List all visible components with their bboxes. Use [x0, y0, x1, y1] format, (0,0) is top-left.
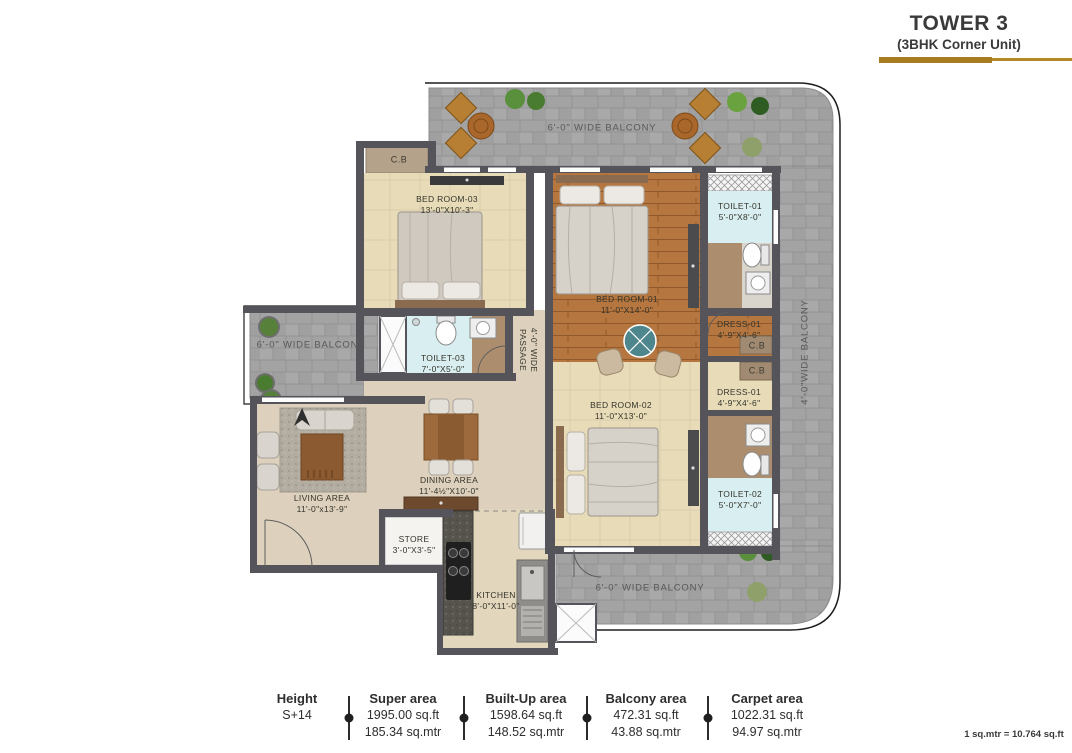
label-toilet2: TOILET-025'-0"X7'-0" — [718, 489, 762, 511]
divider-dot — [704, 714, 713, 723]
label-bedroom2: BED ROOM-0211'-0"X13'-0" — [590, 400, 652, 422]
label-dress2: DRESS-014'-9"X4'-6" — [717, 387, 761, 409]
stats-divider — [707, 696, 709, 740]
stats-divider — [348, 696, 350, 740]
page-title: TOWER 3 — [846, 12, 1072, 36]
label-bedroom1: BED ROOM-0111'-0"X14'-0" — [596, 294, 658, 316]
label-toilet1: TOILET-015'-0"X8'-0" — [718, 201, 762, 223]
label-balcony-left: 6'-0" WIDE BALCONY — [257, 340, 366, 351]
stats-divider — [463, 696, 465, 740]
stat-super-area: Super area 1995.00 sq.ft 185.34 sq.mtr — [365, 691, 441, 741]
stats-divider — [586, 696, 588, 740]
label-balcony-top: 6'-0" WIDE BALCONY — [548, 123, 657, 134]
label-cb-top: C.B — [391, 155, 408, 166]
divider-dot — [583, 714, 592, 723]
label-dining: DINING AREA11'-4½"X10'-0" — [419, 475, 479, 497]
label-bedroom3: BED ROOM-0313'-0"X10'-3" — [416, 194, 478, 216]
label-toilet3: TOILET-037'-0"X5'-0" — [421, 353, 465, 375]
title-block: TOWER 3 (3BHK Corner Unit) — [846, 12, 1072, 53]
stat-builtup-area: Built-Up area 1598.64 sq.ft 148.52 sq.mt… — [486, 691, 567, 741]
divider-dot — [460, 714, 469, 723]
gold-underline-thick — [879, 57, 992, 63]
gold-underline-thin — [992, 58, 1072, 61]
label-store: STORE3'-0"X3'-5" — [393, 534, 436, 556]
label-cb-mid1: C.B — [749, 341, 766, 352]
label-balcony-right: 4'-0"WIDE BALCONY — [800, 299, 811, 404]
conversion-footnote: 1 sq.mtr = 10.764 sq.ft — [964, 729, 1064, 740]
label-cb-mid2: C.B — [749, 366, 766, 377]
floor-plan-page: TOWER 3 (3BHK Corner Unit) 6'-0" WIDE BA… — [0, 0, 1072, 753]
stat-carpet-area: Carpet area 1022.31 sq.ft 94.97 sq.mtr — [731, 691, 803, 741]
label-dress1: DRESS-014'-9"X4'-6" — [717, 319, 761, 341]
floor-plan-graphic — [0, 0, 1072, 753]
label-balcony-bottom: 6'-0" WIDE BALCONY — [596, 583, 705, 594]
label-passage: 4'-0" WIDEPASSAGE — [517, 328, 539, 372]
label-kitchen: KITCHEN8'-0"X11'-0" — [472, 590, 519, 612]
divider-dot — [345, 714, 354, 723]
page-subtitle: (3BHK Corner Unit) — [846, 36, 1072, 53]
stat-height: Height S+14 — [277, 691, 317, 724]
label-living: LIVING AREA11'-0"x13'-9" — [294, 493, 350, 515]
stat-balcony-area: Balcony area 472.31 sq.ft 43.88 sq.mtr — [606, 691, 687, 741]
